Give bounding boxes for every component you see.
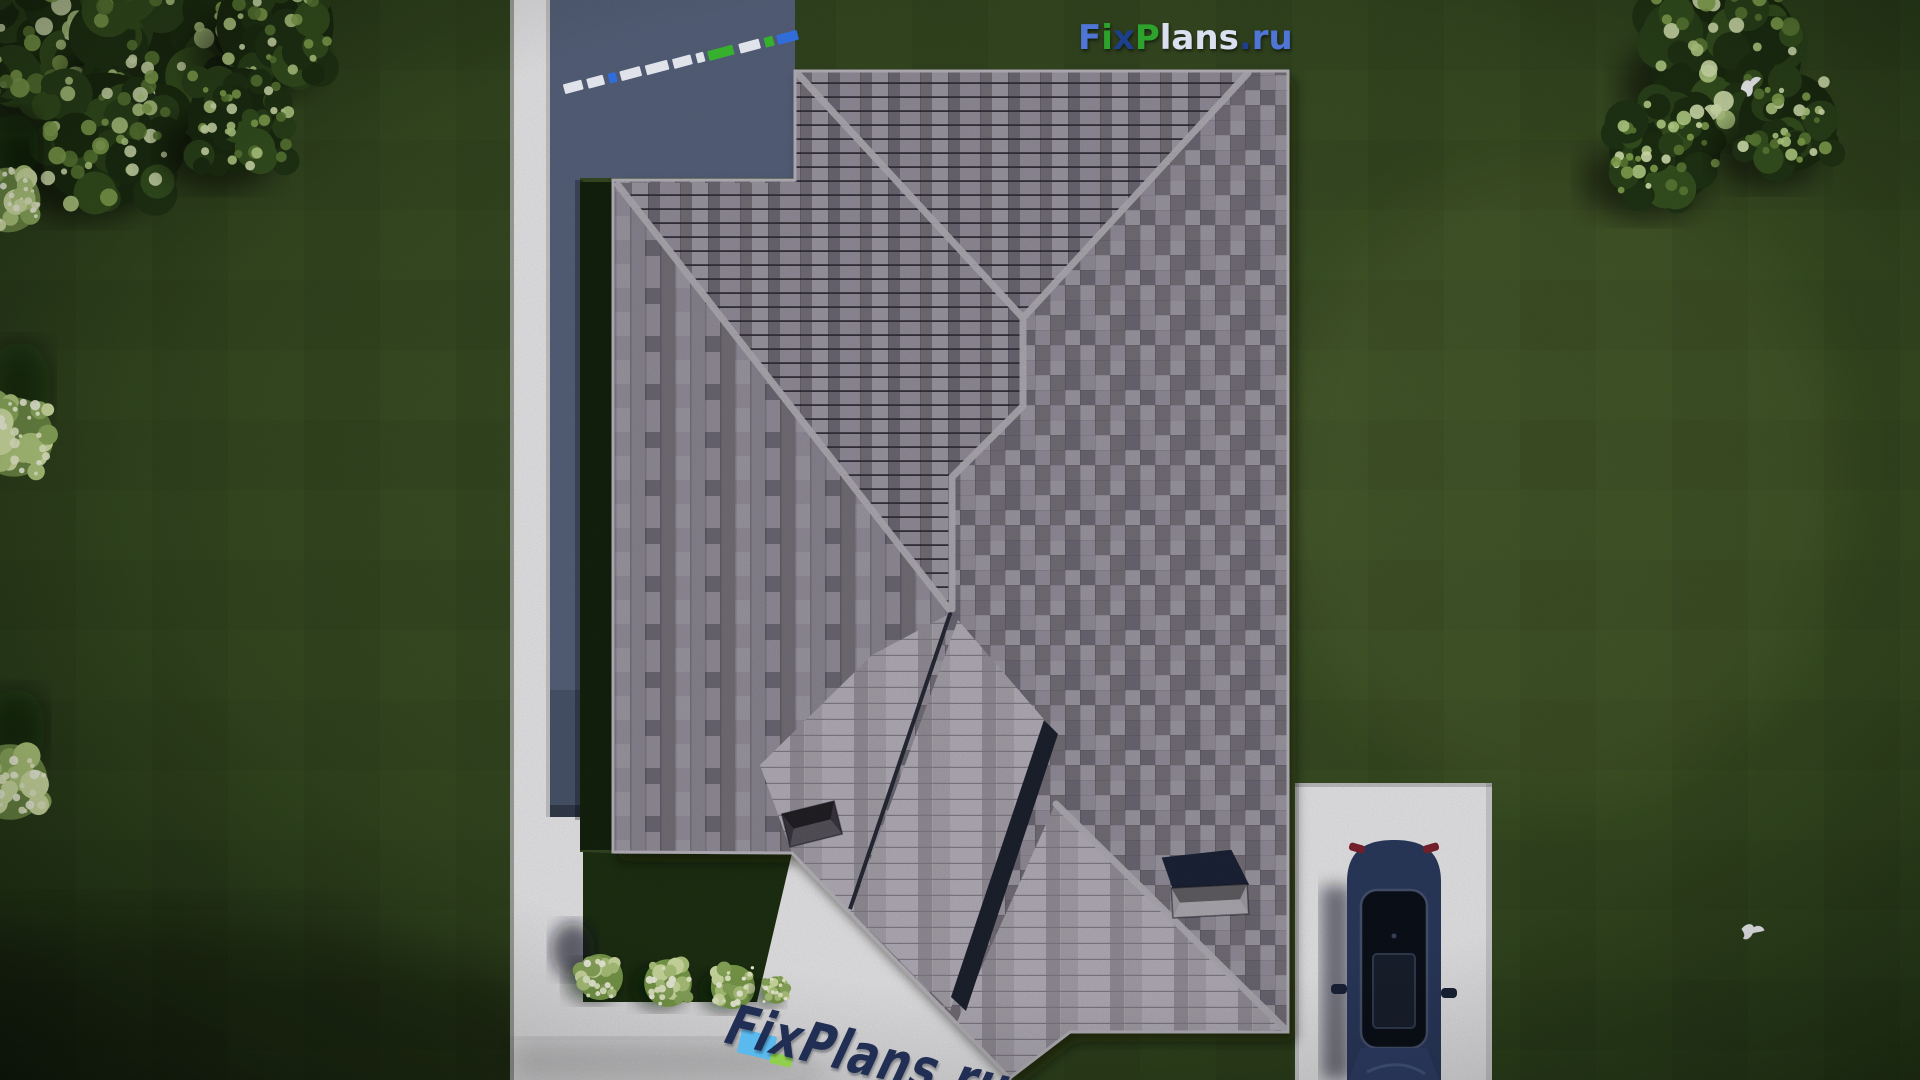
logo-letter: l [1160, 18, 1172, 58]
logo-letter: u [1269, 18, 1293, 58]
logo-letter: r [1252, 18, 1269, 58]
logo-letter: x [1113, 18, 1135, 58]
watermark-block [607, 72, 617, 84]
logo-letter: P [1135, 18, 1160, 58]
watermark-block [695, 52, 705, 64]
logo-letter: . [1239, 18, 1252, 58]
site-plan-render: FixPlans.ru FixPlans.ru [0, 0, 1920, 1080]
logo-letter: F [1078, 18, 1101, 58]
vignette [0, 0, 1920, 1080]
logo-letter: s [1219, 18, 1239, 58]
logo-letter: n [1194, 18, 1218, 58]
brand-logo: FixPlans.ru [1078, 18, 1293, 58]
logo-letter: a [1171, 18, 1194, 58]
logo-letter: i [1101, 18, 1113, 58]
scene-canvas [0, 0, 1920, 1080]
watermark-block [763, 36, 774, 48]
